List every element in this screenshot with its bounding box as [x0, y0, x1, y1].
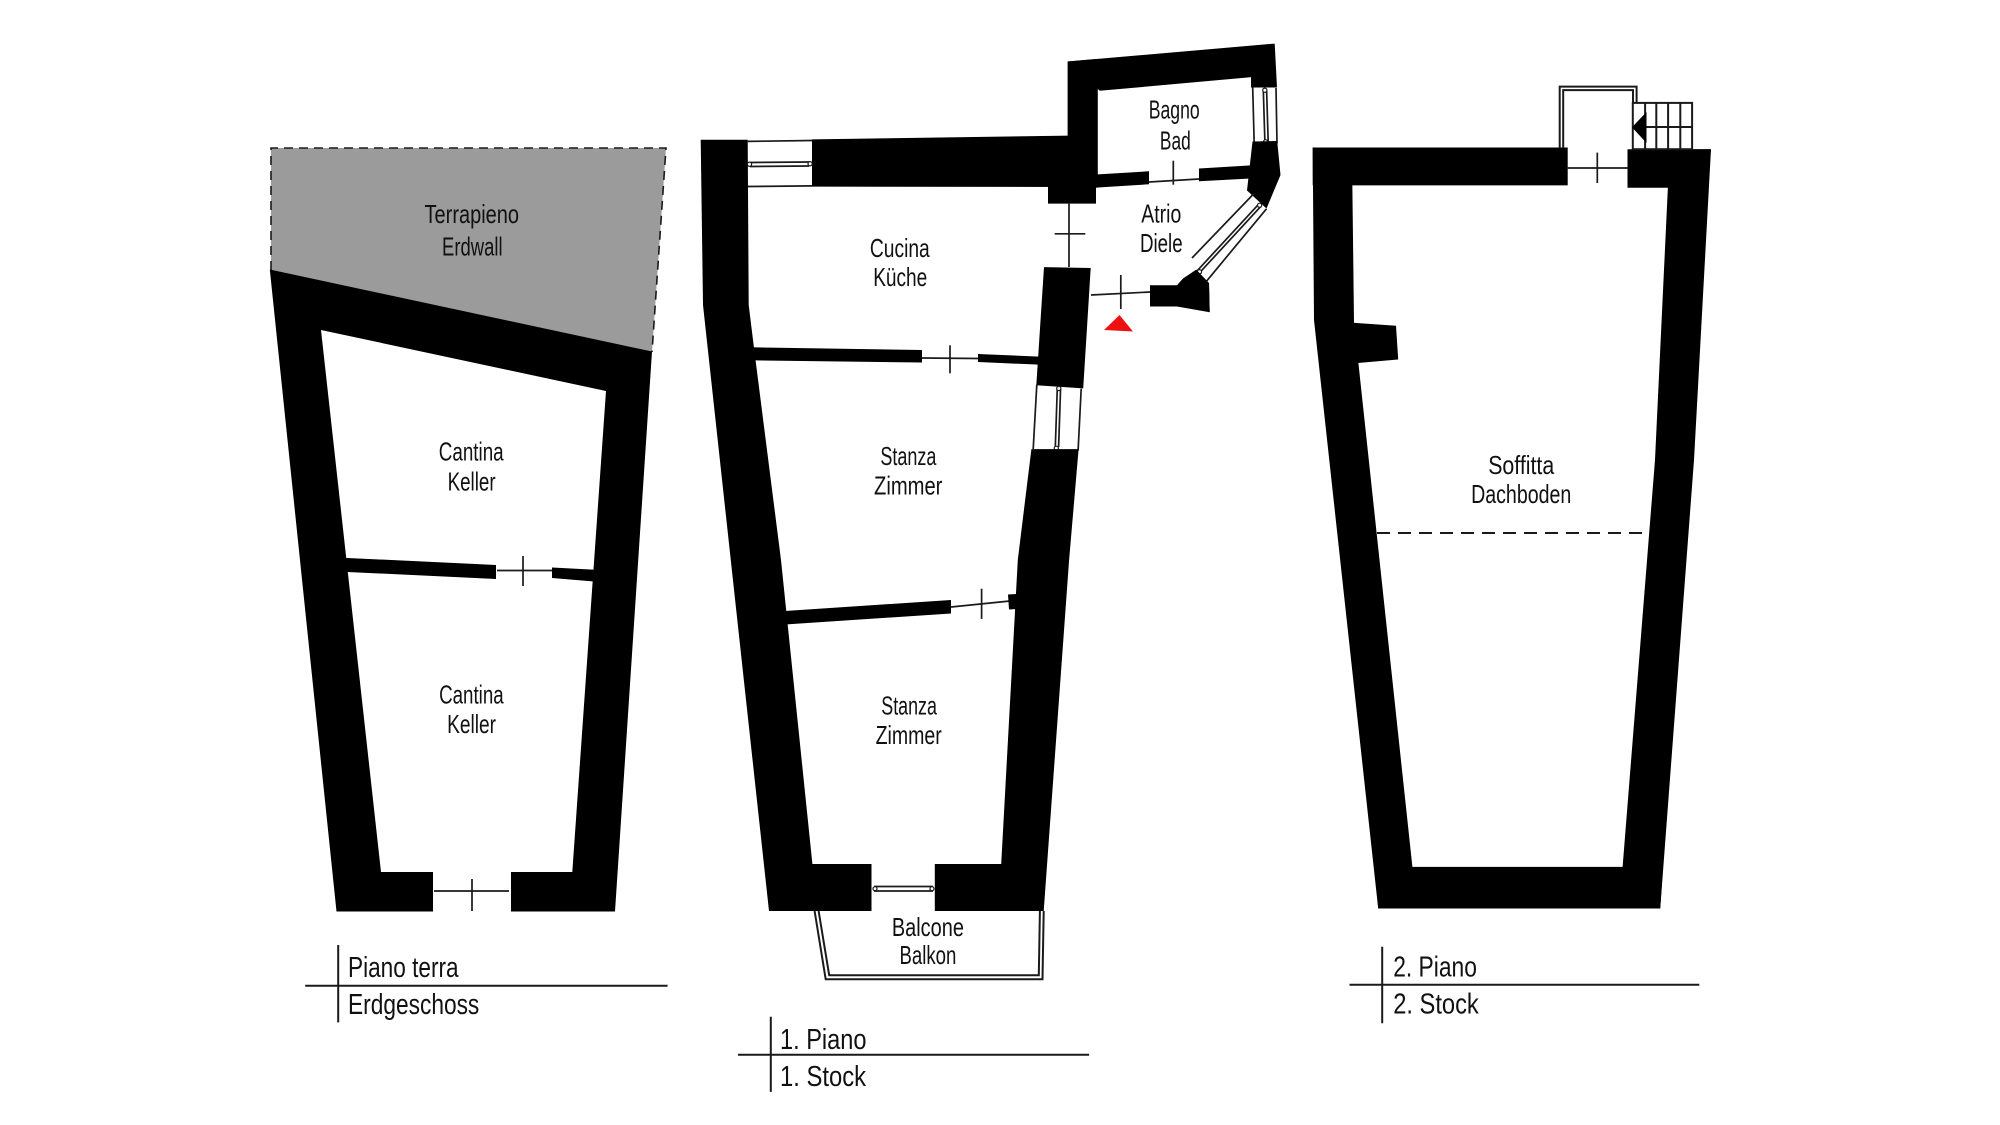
svg-text:Cantina: Cantina: [439, 437, 504, 467]
svg-text:Terrapieno: Terrapieno: [425, 199, 520, 229]
svg-text:Keller: Keller: [447, 709, 496, 739]
svg-text:Bagno: Bagno: [1149, 95, 1200, 125]
svg-text:1. Stock: 1. Stock: [780, 1061, 866, 1093]
svg-text:Diele: Diele: [1140, 228, 1183, 258]
svg-text:Keller: Keller: [448, 466, 496, 496]
svg-text:Soffitta: Soffitta: [1488, 450, 1554, 480]
svg-text:Balkon: Balkon: [899, 940, 956, 970]
svg-text:Erdwall: Erdwall: [442, 232, 503, 262]
svg-text:Bad: Bad: [1160, 126, 1191, 156]
svg-text:Cantina: Cantina: [439, 679, 504, 709]
svg-text:Atrio: Atrio: [1141, 199, 1181, 229]
svg-text:Erdgeschoss: Erdgeschoss: [348, 989, 479, 1021]
svg-text:Cucina: Cucina: [870, 233, 930, 263]
svg-text:Stanza: Stanza: [881, 691, 937, 721]
svg-text:1. Piano: 1. Piano: [780, 1024, 867, 1056]
svg-text:Dachboden: Dachboden: [1471, 479, 1571, 509]
svg-text:2. Stock: 2. Stock: [1393, 989, 1479, 1021]
svg-text:Zimmer: Zimmer: [876, 720, 942, 750]
svg-text:Piano terra: Piano terra: [348, 952, 459, 984]
svg-text:Küche: Küche: [873, 262, 927, 292]
svg-text:Stanza: Stanza: [880, 441, 936, 471]
svg-text:Zimmer: Zimmer: [874, 470, 943, 500]
svg-text:2. Piano: 2. Piano: [1393, 952, 1477, 984]
svg-text:Balcone: Balcone: [892, 912, 964, 942]
